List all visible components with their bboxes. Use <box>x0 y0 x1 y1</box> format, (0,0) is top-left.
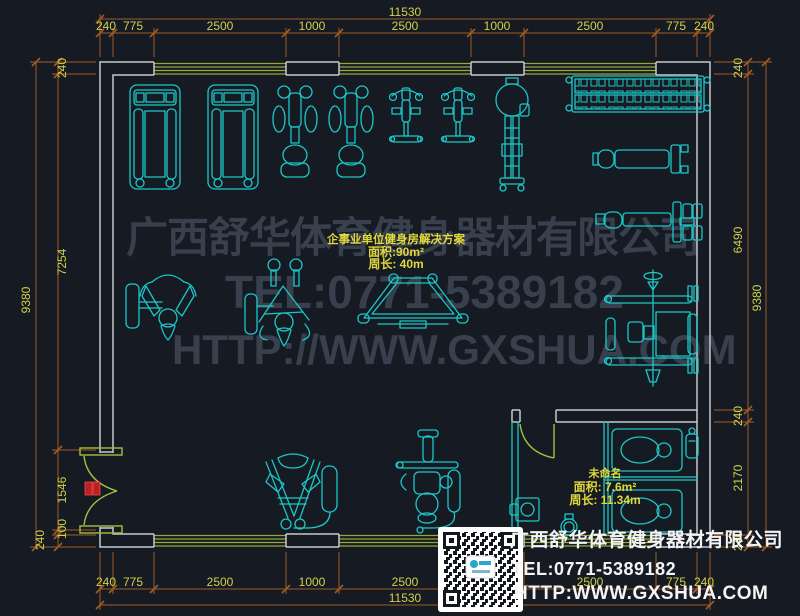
dim-bottom-overall: 11530 <box>389 591 422 605</box>
dimension-top: 11530 240 775 2500 1000 2500 1000 2500 7… <box>96 5 714 57</box>
dim-label: 7254 <box>55 248 69 275</box>
dim-label: 2500 <box>207 19 234 33</box>
leg-press-machine <box>266 454 337 529</box>
dim-label: 240 <box>96 19 116 33</box>
footer-website: HTTP:WWW.GXSHUA.COM <box>514 583 768 604</box>
footer-company: 广西舒华体育健身器材有限公司 <box>510 528 783 551</box>
main-room-perimeter: 周长: 40m <box>368 256 423 271</box>
exercise-bike-2 <box>442 88 475 142</box>
dim-label: 2500 <box>392 575 419 589</box>
urinal <box>686 428 698 458</box>
dim-label: 775 <box>666 19 686 33</box>
dim-label: 2500 <box>207 575 234 589</box>
main-room-title: 企事业单位健身房解决方案 <box>326 232 465 246</box>
dim-label: 2500 <box>577 19 604 33</box>
dim-label: 1546 <box>55 476 69 503</box>
dumbbell-rack <box>566 76 710 112</box>
dim-label: 1000 <box>484 19 511 33</box>
flat-bench <box>593 145 688 173</box>
floor-plan-canvas: 广西舒华体育健身器材有限公司 TEL:0771-5389182 HTTP://W… <box>0 0 800 616</box>
wc-door-swing-arc <box>520 424 554 458</box>
treadmill-2 <box>208 85 258 189</box>
window-band-top <box>154 61 656 76</box>
dim-label: 1000 <box>299 575 326 589</box>
wc-room-name: 未命名 <box>588 466 622 480</box>
wc-room: 未命名 面积: 7.6m² 周长: 11.34m <box>510 410 698 535</box>
dim-label: 240 <box>731 58 745 78</box>
watermark-tel: TEL:0771-5389182 <box>225 266 624 318</box>
dim-label: 240 <box>731 406 745 426</box>
treadmill-1 <box>130 85 180 189</box>
elliptical-1 <box>273 86 317 177</box>
dim-label: 240 <box>55 58 69 78</box>
elliptical-2 <box>329 86 373 177</box>
abdominal-machine <box>396 430 460 533</box>
dim-label: 240 <box>96 575 116 589</box>
wc-room-area: 面积: 7.6m² <box>574 479 637 494</box>
dim-label: 2500 <box>392 19 419 33</box>
wc-room-perimeter: 周长: 11.34m <box>569 492 640 507</box>
dim-label: 2170 <box>731 464 745 491</box>
door-handle <box>85 482 100 495</box>
dim-label: 775 <box>123 19 143 33</box>
weight-tower <box>496 78 529 191</box>
dim-label: 775 <box>123 575 143 589</box>
dim-label: 240 <box>33 530 47 550</box>
watermark-url: HTTP://WWW.GXSHUA.COM <box>172 326 737 373</box>
dim-label: 1000 <box>299 19 326 33</box>
dimension-right: 240 6490 240 2170 240 9380 <box>714 58 772 551</box>
toilet-1 <box>612 429 682 471</box>
footer-block: 广西舒华体育健身器材有限公司 TEL:0771-5389182 HTTP:WWW… <box>438 527 783 612</box>
wc-room-label: 未命名 面积: 7.6m² 周长: 11.34m <box>569 466 640 507</box>
dimension-left: 240 7254 1546 100 240 9380 <box>19 58 96 551</box>
cad-floorplan-view: 广西舒华体育健身器材有限公司 TEL:0771-5389182 HTTP://W… <box>0 0 800 616</box>
dim-label: 240 <box>694 19 714 33</box>
qr-center-logo <box>466 556 495 578</box>
exercise-bike-1 <box>390 88 423 142</box>
dim-label: 6490 <box>731 226 745 253</box>
dim-label: 100 <box>55 519 69 539</box>
footer-tel: TEL:0771-5389182 <box>512 559 676 579</box>
dim-top-overall: 11530 <box>389 5 422 19</box>
dim-right-overall: 9380 <box>750 284 764 311</box>
dim-left-overall: 9380 <box>19 286 33 313</box>
sink <box>510 498 539 521</box>
